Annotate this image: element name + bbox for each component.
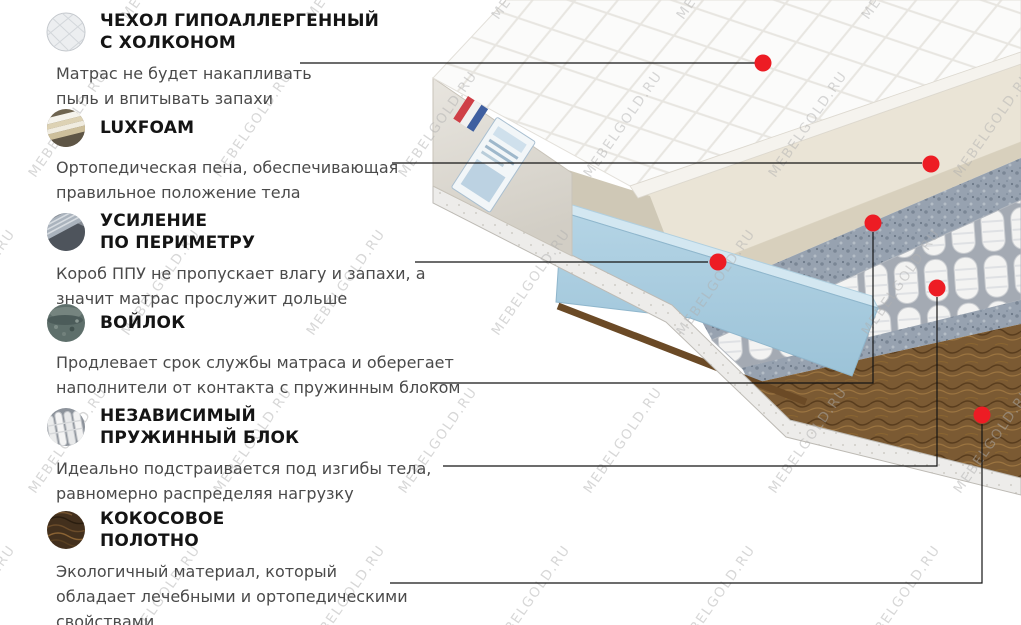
section-cover: ЧЕХОЛ ГИПОАЛЛЕРГЕННЫЙ С ХОЛКОНОМ Матрас …	[46, 10, 476, 111]
section-perimeter: УСИЛЕНИЕ ПО ПЕРИМЕТРУ Короб ППУ не пропу…	[46, 210, 476, 311]
perimeter-foam-icon	[46, 212, 86, 252]
felt-icon	[46, 303, 86, 343]
layer-legend: ЧЕХОЛ ГИПОАЛЛЕРГЕННЫЙ С ХОЛКОНОМ Матрас …	[0, 0, 460, 625]
coconut-coir-icon	[46, 510, 86, 550]
section-description: Ортопедическая пена, обеспечивающая прав…	[56, 155, 476, 205]
section-title: КОКОСОВОЕ ПОЛОТНО	[100, 508, 224, 552]
section-description: Матрас не будет накапливать пыль и впиты…	[56, 61, 476, 111]
section-title: УСИЛЕНИЕ ПО ПЕРИМЕТРУ	[100, 210, 255, 254]
section-coconut: КОКОСОВОЕ ПОЛОТНО Экологичный материал, …	[46, 508, 476, 625]
section-description: Идеально подстраивается под изгибы тела,…	[56, 456, 476, 506]
mattress-infographic: MEBELGOLD.RUMEBELGOLD.RUMEBELGOLD.RUMEBE…	[0, 0, 1021, 625]
foam-layers-icon	[46, 108, 86, 148]
section-title: LUXFOAM	[100, 117, 194, 139]
section-luxfoam: LUXFOAM Ортопедическая пена, обеспечиваю…	[46, 108, 476, 205]
section-title: ЧЕХОЛ ГИПОАЛЛЕРГЕННЫЙ С ХОЛКОНОМ	[100, 10, 379, 54]
section-description: Продлевает срок службы матраса и оберега…	[56, 350, 476, 400]
section-springs: НЕЗАВИСИМЫЙ ПРУЖИННЫЙ БЛОК Идеально подс…	[46, 405, 476, 506]
section-title: ВОЙЛОК	[100, 312, 185, 334]
section-felt: ВОЙЛОК Продлевает срок службы матраса и …	[46, 303, 476, 400]
quilted-cover-icon	[46, 12, 86, 52]
section-description: Экологичный материал, который обладает л…	[56, 559, 476, 625]
section-title: НЕЗАВИСИМЫЙ ПРУЖИННЫЙ БЛОК	[100, 405, 299, 449]
pocket-springs-icon	[46, 407, 86, 447]
